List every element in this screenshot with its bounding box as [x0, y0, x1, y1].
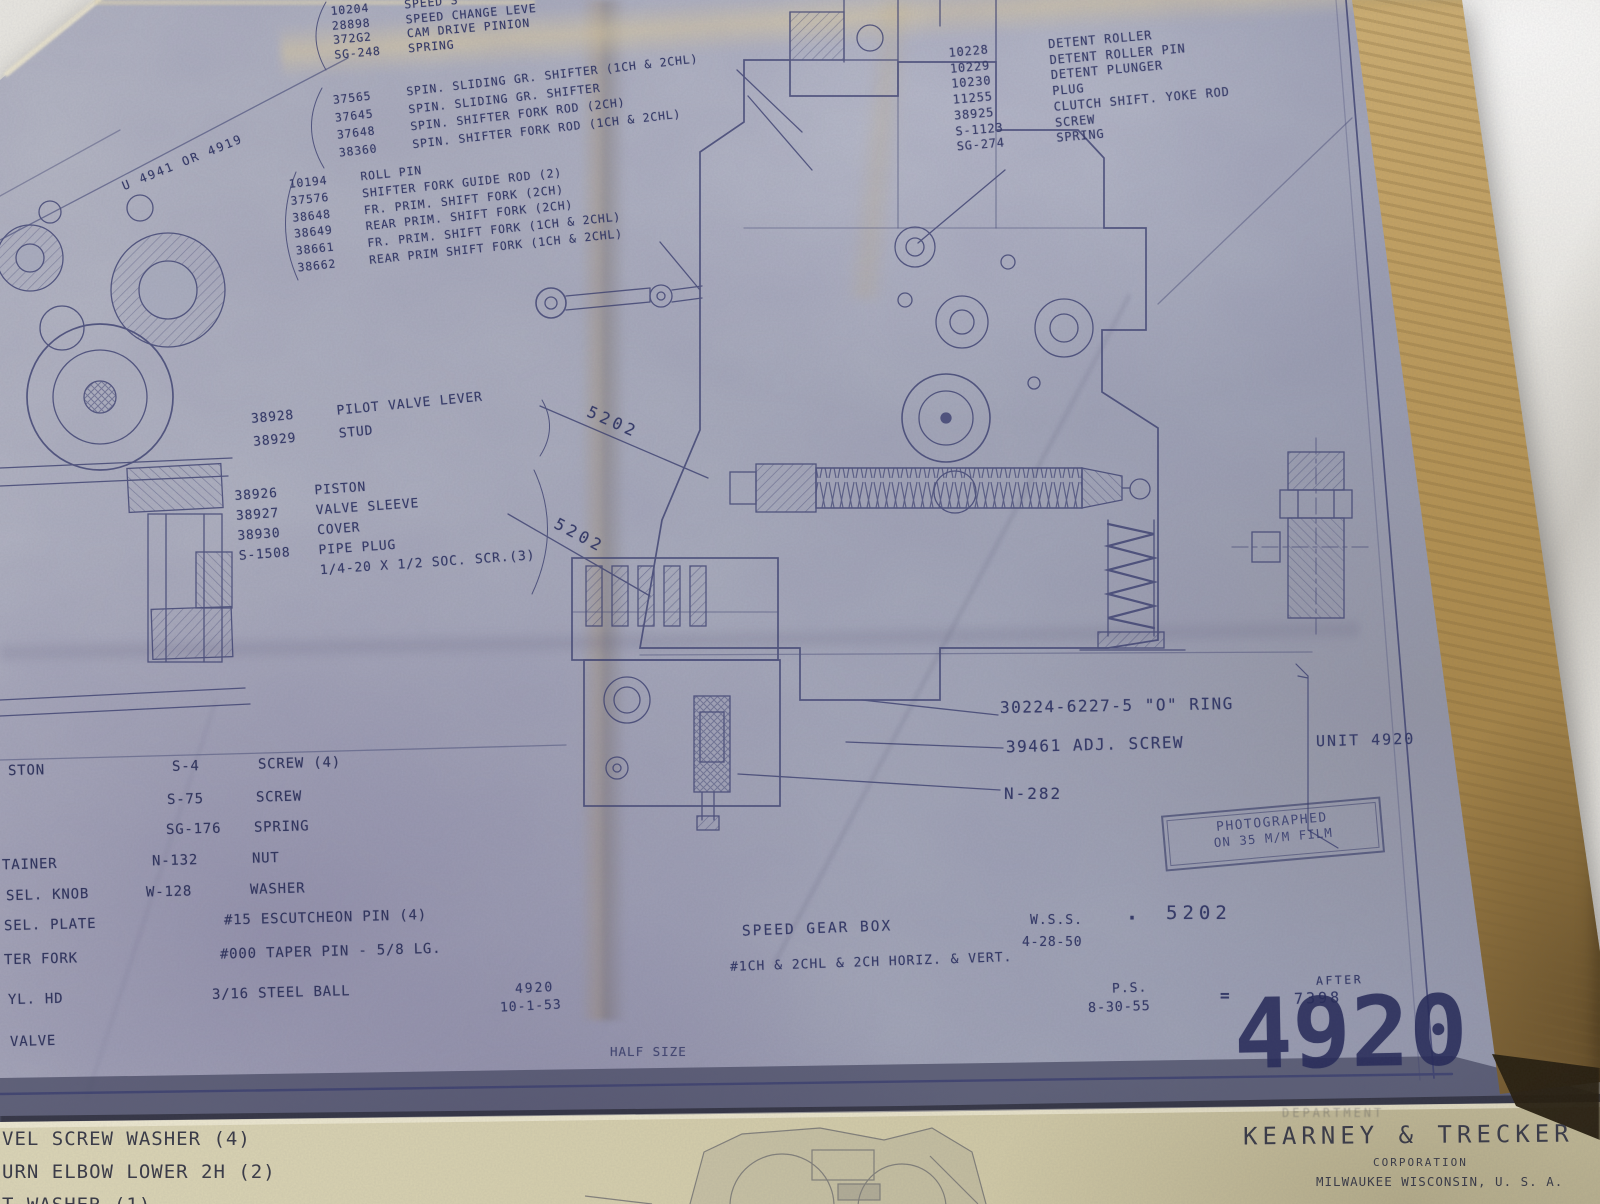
- part-name: SCREW (4): [258, 754, 341, 772]
- photo-of-blueprint: { "colors": { "ink": "#383c68", "paper_b…: [0, 0, 1600, 1204]
- company-name: KEARNEY & TRECKER: [1243, 1120, 1574, 1151]
- part-name-fragment: SEL. PLATE: [4, 916, 97, 934]
- second-sheet-line: VEL SCREW WASHER (4): [2, 1128, 251, 1150]
- part-number: SG-176: [166, 821, 222, 838]
- part-name-fragment: SEL. KNOB: [6, 886, 89, 904]
- part-name: STUD: [338, 419, 375, 445]
- part-number: S-4: [172, 758, 200, 775]
- second-sheet-line: T WASHER (1): [2, 1194, 151, 1204]
- part-name-fragment: YL. HD: [8, 991, 64, 1008]
- o-ring-callout: 30224-6227-5 "O" RING: [1000, 694, 1234, 717]
- wss-date: 4-28-50: [1022, 935, 1082, 950]
- part-name-fragment: TAINER: [2, 856, 58, 873]
- part-number: S-75: [167, 791, 204, 808]
- part-name: WASHER: [250, 880, 306, 897]
- part-number: W-128: [146, 883, 193, 900]
- equals-mark: =: [1220, 986, 1230, 1005]
- sheet-reference-number: 5202: [1166, 902, 1232, 924]
- part-name-fragment: TER FORK: [4, 950, 78, 968]
- department-line: DEPARTMENT: [1282, 1106, 1384, 1120]
- separator-dot: ·: [1126, 906, 1139, 930]
- ps-date: 8-30-55: [1088, 998, 1151, 1016]
- nut-callout: N-282: [1004, 784, 1062, 803]
- second-sheet-line: URN ELBOW LOWER 2H (2): [2, 1161, 276, 1183]
- unit-number-label: UNIT 4920: [1316, 730, 1416, 751]
- company-type: CORPORATION: [1373, 1156, 1468, 1169]
- wss-label: W.S.S.: [1030, 913, 1083, 928]
- part-number: N-132: [152, 852, 199, 869]
- part-name-fragment: STON: [8, 762, 45, 779]
- ps-label: P.S.: [1112, 980, 1148, 996]
- part-name: SPRING: [254, 818, 310, 835]
- company-location: MILWAUKEE WISCONSIN, U. S. A.: [1316, 1174, 1563, 1189]
- scale-note: HALF SIZE: [610, 1044, 687, 1059]
- parts-list-piston-group: 38926PISTON 38927VALVE SLEEVE 38930COVER…: [234, 466, 536, 586]
- part-name-fragment: VALVE: [10, 1033, 57, 1050]
- drawing-number-large: 4920: [1233, 974, 1469, 1091]
- part-name: 3/16 STEEL BALL: [212, 983, 351, 1003]
- part-name: SCREW: [256, 788, 303, 805]
- revision-number: 4920: [515, 980, 555, 997]
- revision-date: 10-1-53: [500, 997, 562, 1015]
- part-name: NUT: [252, 850, 280, 867]
